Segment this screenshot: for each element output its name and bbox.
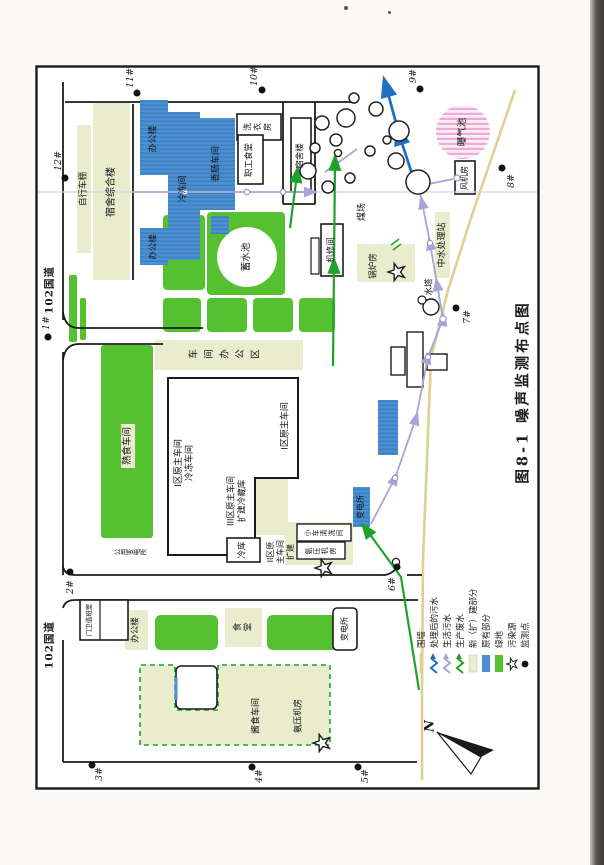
point-dot bbox=[453, 305, 460, 312]
label-office-a: 办公楼 bbox=[148, 125, 159, 152]
label-ammonia-west: 氨压机房 bbox=[294, 699, 305, 733]
legend-row-new-expanded: 新（扩）建部分 bbox=[466, 574, 479, 674]
point-dot bbox=[62, 175, 69, 182]
legend-row-green-space: 绿地 bbox=[492, 574, 505, 674]
label-dorm: 宿舍楼 bbox=[296, 143, 307, 169]
label-fan-room: 风机房 bbox=[460, 166, 470, 190]
monitoring-point-11: 11# bbox=[137, 86, 144, 93]
highway-label: 102国道 bbox=[42, 266, 57, 314]
label-cold-store: 冷库 bbox=[238, 541, 249, 558]
monitoring-point-2: 2# bbox=[70, 565, 77, 572]
label-zone3: III区原主车间 扩建冷藏库 bbox=[226, 476, 247, 526]
monitoring-point-10: 10# bbox=[262, 83, 269, 90]
legend-row-domestic-sewage: 生活污水 bbox=[440, 574, 453, 674]
label-boiler-room: 锅炉房 bbox=[369, 253, 380, 279]
highway-label: 102国道 bbox=[42, 621, 57, 669]
monitoring-point-7: 7# bbox=[456, 301, 463, 308]
label-water-station: 中水处理站 bbox=[437, 222, 448, 267]
scan-speck bbox=[388, 11, 391, 14]
label-substation-west: 变电所 bbox=[340, 617, 350, 641]
monitoring-point-8: 8# bbox=[502, 161, 509, 168]
label-ammonia-east: 氨压机房 bbox=[305, 546, 337, 556]
label-workshop-office: 车间办公区 bbox=[188, 349, 266, 363]
label-gatehouse: 门卫值班室 bbox=[85, 604, 93, 637]
pipe-junction bbox=[334, 149, 341, 156]
legend-row-production-wastewater: 生产废水 bbox=[453, 574, 466, 674]
point-dot bbox=[134, 90, 141, 97]
label-cooked-food: 熟食车间 bbox=[121, 424, 135, 468]
label-freezer-room: 冷冻间 bbox=[178, 175, 189, 202]
point-dot bbox=[45, 334, 52, 341]
monitoring-point-1: 1# bbox=[48, 330, 55, 337]
legend-row-original: 原有部分 bbox=[479, 574, 492, 674]
label-machine-repair: 机修间 bbox=[327, 237, 338, 263]
map-legend: 围墙 处理后的污水 生活污水 生产废水 新（扩）建部分 原有部分 绿地 污染源 … bbox=[414, 574, 531, 674]
legend-row-treated-water: 处理后的污水 bbox=[427, 574, 440, 674]
monitoring-point-6: 6# bbox=[397, 560, 404, 567]
label-sauce-workshop: 酱食车间 bbox=[251, 698, 262, 734]
figure-title: 图8-1 噪声监测布点图 bbox=[512, 300, 533, 483]
scanner-edge-strip bbox=[590, 0, 604, 865]
label-office-west: 办公楼 bbox=[131, 617, 142, 643]
label-staff-canteen: 职工食堂 bbox=[245, 143, 256, 177]
label-zone1: I区原主车间 bbox=[280, 402, 291, 450]
blue-box-icon bbox=[480, 652, 492, 674]
label-laundry: 洗衣房 bbox=[243, 122, 273, 133]
label-dorm-complex: 宿舍综合楼 bbox=[106, 167, 119, 217]
label-car-wash: 小车清洗间 bbox=[304, 528, 344, 538]
monitoring-point-5: 5# bbox=[358, 760, 365, 767]
wall-line-icon bbox=[415, 652, 427, 674]
label-office-b: 办公楼 bbox=[149, 234, 160, 260]
monitoring-point-4: 4# bbox=[252, 760, 259, 767]
label-canteen-west: 食堂 bbox=[233, 622, 254, 634]
scanned-page: { "title": "图8-1 噪声监测布点图", "road": { "la… bbox=[0, 0, 604, 865]
compass-n-label: N bbox=[423, 720, 438, 732]
label-zone2: II区原 主车间 扩建 bbox=[266, 540, 296, 564]
zigzag-blue-icon bbox=[428, 652, 440, 674]
label-aeration-tank: 曝气池 bbox=[457, 118, 469, 147]
legend-row-pollution-source: 污染源 bbox=[505, 574, 518, 674]
star-icon bbox=[506, 652, 518, 674]
legend-row-monitoring-point: 监测点 bbox=[518, 574, 531, 674]
label-sausage-workshop: 香肠车间 bbox=[211, 146, 222, 182]
point-dot bbox=[499, 165, 506, 172]
point-dot bbox=[67, 569, 74, 576]
monitoring-point-9: 9# bbox=[420, 82, 427, 89]
label-substation-east: 变电所 bbox=[356, 495, 366, 519]
label-reservoir: 蓄水池 bbox=[241, 243, 253, 272]
label-water-tower: 水塔 bbox=[425, 278, 436, 295]
point-dot bbox=[259, 87, 266, 94]
point-dot bbox=[394, 564, 401, 571]
scan-speck bbox=[344, 6, 348, 10]
green-box-icon bbox=[493, 652, 505, 674]
label-public-substation: 公用变电所 bbox=[114, 548, 147, 558]
pale-box-icon bbox=[467, 652, 479, 674]
legend-row-wall: 围墙 bbox=[414, 574, 427, 674]
monitoring-point-12: 12# bbox=[65, 171, 72, 178]
monitoring-point-3: 3# bbox=[92, 758, 99, 765]
dot-icon bbox=[519, 652, 531, 674]
label-bike-shed: 自行车棚 bbox=[79, 172, 90, 206]
zigzag-lavender-icon bbox=[441, 652, 453, 674]
site-map: 102国道 102国道 自行车棚 宿舍综合楼 办公楼 冷冻间 香肠车间 办公楼 … bbox=[35, 65, 540, 790]
point-dot bbox=[417, 86, 424, 93]
label-coal-yard: 煤场 bbox=[357, 203, 368, 221]
label-zone1-freezer: I区原主车间 冷冻车间 bbox=[174, 439, 197, 487]
zigzag-green-icon bbox=[454, 652, 466, 674]
